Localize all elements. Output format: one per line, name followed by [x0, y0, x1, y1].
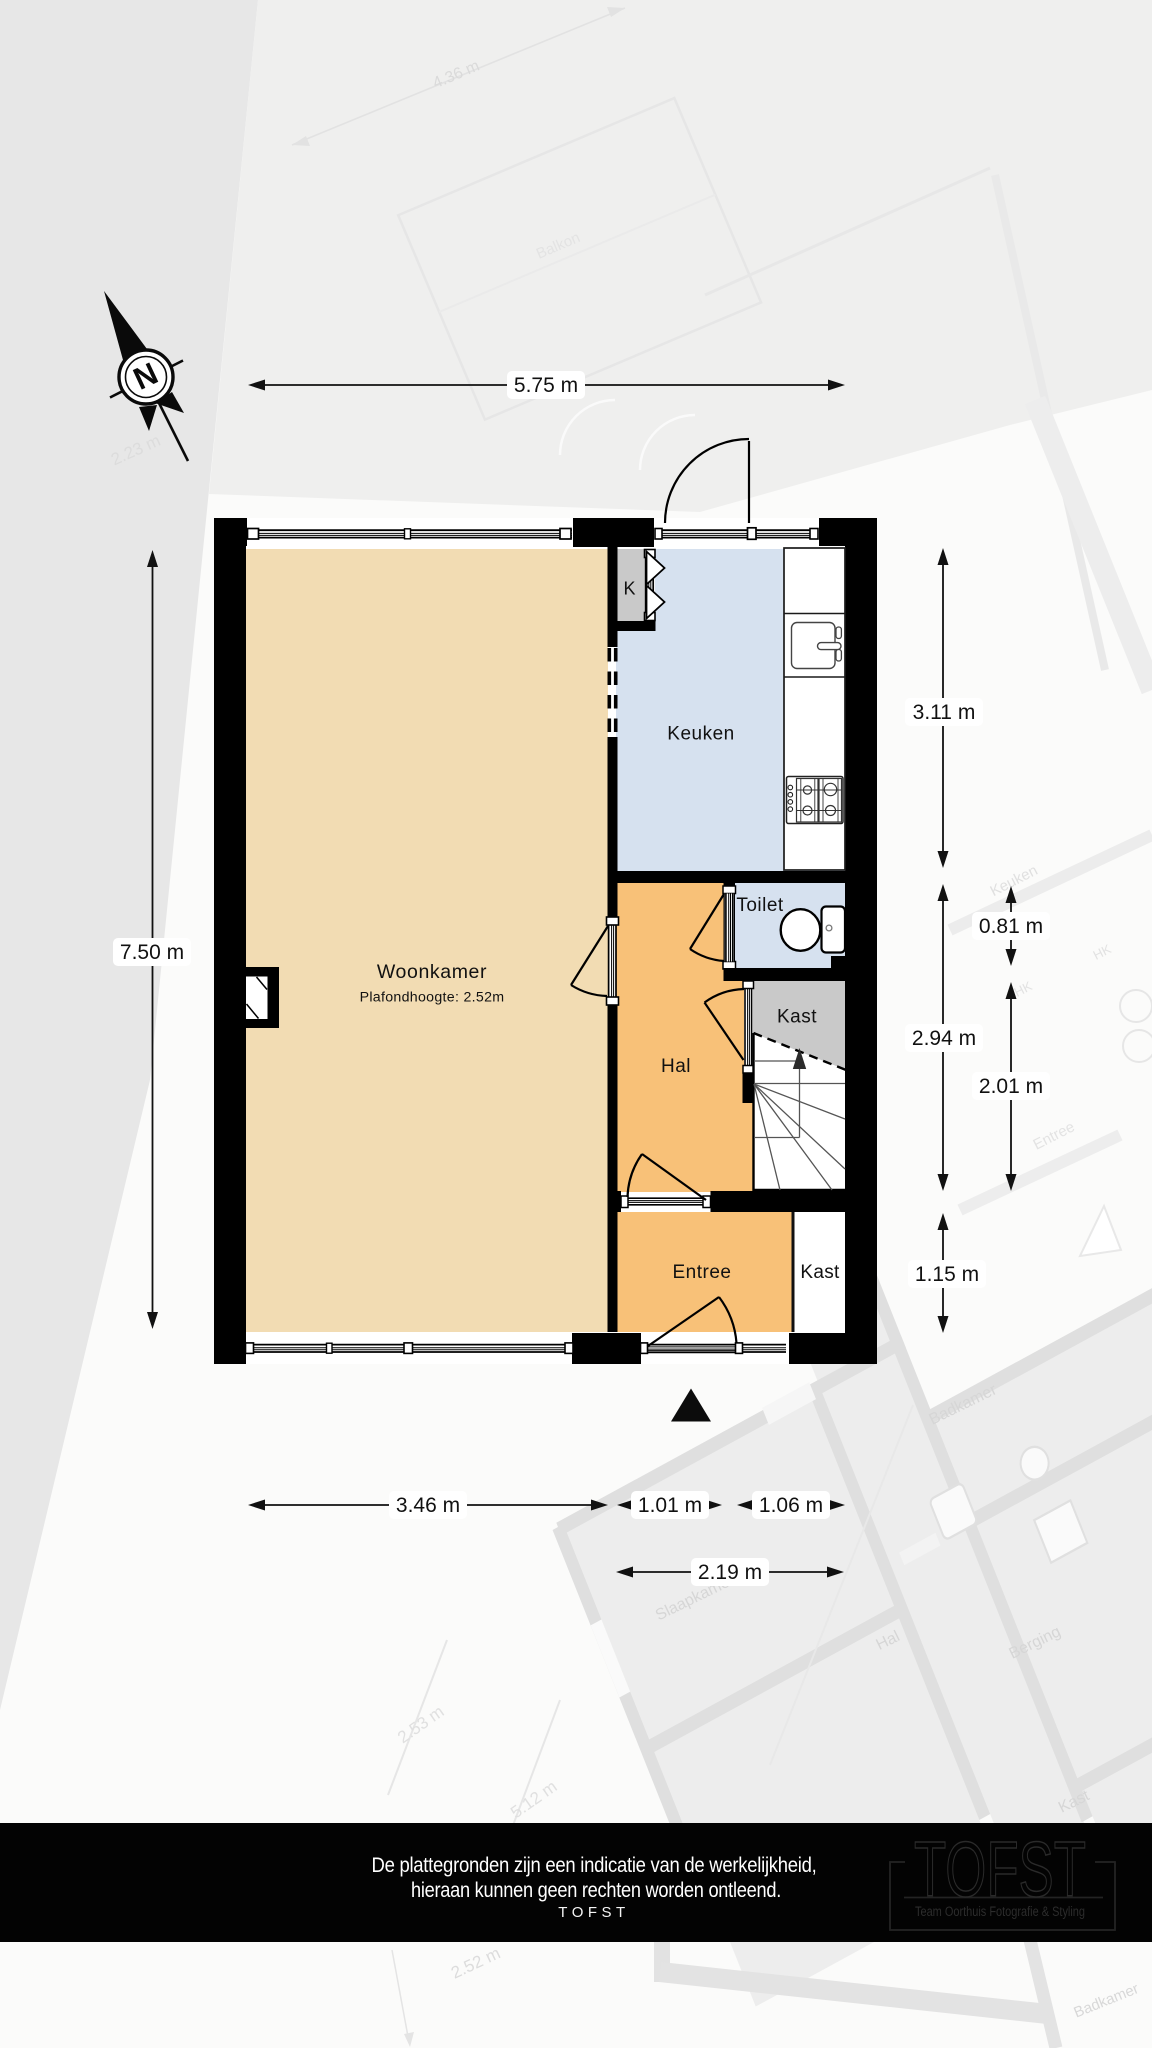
svg-text:2.94 m: 2.94 m — [912, 1027, 976, 1050]
svg-text:TOFST: TOFST — [558, 1904, 629, 1921]
svg-text:Toilet: Toilet — [736, 895, 784, 916]
svg-text:Keuken: Keuken — [667, 724, 734, 745]
svg-text:0.81 m: 0.81 m — [979, 915, 1043, 938]
svg-text:1.06 m: 1.06 m — [759, 1494, 823, 1517]
svg-text:De plattegronden zijn een indi: De plattegronden zijn een indicatie van … — [372, 1854, 817, 1877]
svg-text:Plafondhoogte: 2.52m: Plafondhoogte: 2.52m — [360, 990, 505, 1006]
svg-text:2.01 m: 2.01 m — [979, 1075, 1043, 1098]
svg-text:7.50 m: 7.50 m — [120, 941, 184, 964]
svg-text:Woonkamer: Woonkamer — [377, 961, 487, 983]
svg-text:TOFST: TOFST — [914, 1825, 1086, 1913]
svg-text:3.11 m: 3.11 m — [913, 701, 976, 724]
svg-text:Hal: Hal — [661, 1056, 691, 1077]
svg-text:K: K — [623, 579, 635, 599]
svg-text:hieraan kunnen geen rechten wo: hieraan kunnen geen rechten worden ontle… — [411, 1879, 781, 1902]
svg-text:1.01 m: 1.01 m — [638, 1494, 702, 1517]
svg-text:3.46 m: 3.46 m — [396, 1494, 460, 1517]
svg-text:5.75 m: 5.75 m — [514, 374, 578, 397]
svg-text:Kast: Kast — [777, 1007, 817, 1028]
svg-text:Kast: Kast — [800, 1262, 840, 1283]
svg-text:2.19 m: 2.19 m — [698, 1561, 762, 1584]
svg-text:Team Oorthuis Fotografie & Sty: Team Oorthuis Fotografie & Styling — [915, 1904, 1085, 1919]
svg-text:Entree: Entree — [673, 1262, 732, 1283]
svg-text:1.15 m: 1.15 m — [915, 1263, 979, 1286]
